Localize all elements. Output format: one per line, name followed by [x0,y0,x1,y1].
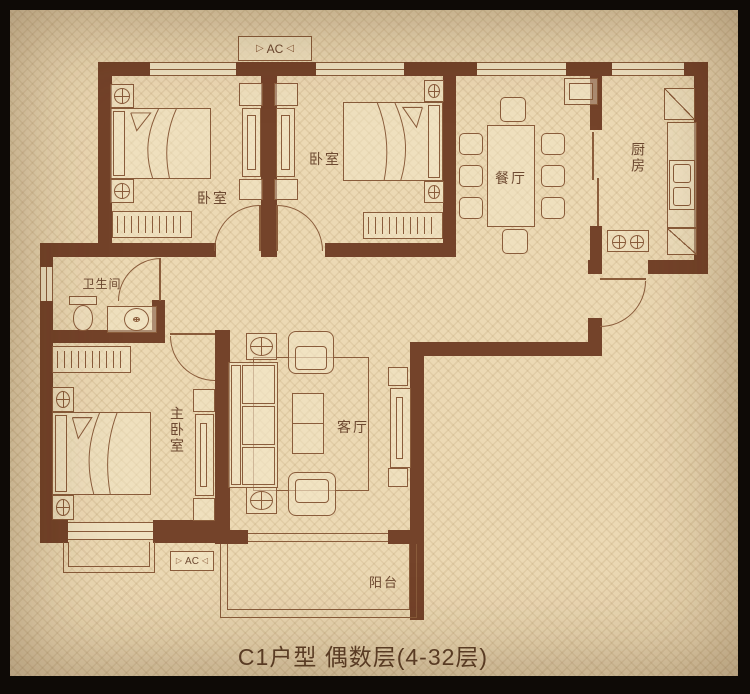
wall [215,530,248,544]
toilet-tank [69,296,97,305]
lamp-icon [114,88,130,104]
burner-icon [630,235,644,249]
armchair-seat [295,346,327,370]
ac-unit-bottom: ▷ AC ◁ [170,551,214,571]
wall [566,62,612,76]
kitchen-sliding-door [597,178,599,226]
wardrobe-door [247,115,256,170]
side-table [246,333,277,360]
closet-box [239,179,263,200]
tv-screen [200,423,207,487]
door-leaf-bedroom1 [259,205,261,251]
floorplan-image: 卧室 卧室 餐厅 厨房 卫生间 [0,0,750,694]
nightstand [110,84,134,108]
refrigerator [664,88,695,120]
bed-blanket-icon [111,109,210,178]
counter-corner [667,228,697,255]
table-divider [293,423,323,424]
dining-chair [459,197,483,219]
room-label-bathroom: 卫生间 [78,275,126,292]
closet-box [239,83,263,106]
closet-box [274,83,298,106]
plan-caption: C1户型 偶数层(4-32层) [0,638,738,672]
tv-side-box [193,389,215,412]
wall [40,257,53,267]
window [316,62,404,76]
burner-icon [612,235,626,249]
room-label-living: 客厅 [327,417,379,437]
drain-icon [133,317,140,322]
wall [648,260,708,274]
ac-triangle-icon: ▷ [176,557,182,565]
bed [52,412,151,495]
wardrobe [242,108,261,177]
bed-blanket-icon [344,103,442,180]
sink-basin [673,187,691,206]
lamp-icon [114,183,130,199]
ac-label: AC [267,42,284,56]
cabinet [564,78,598,105]
bed [110,108,211,179]
wall [404,62,478,76]
lamp-icon [56,499,70,516]
plant-icon [250,491,273,510]
wardrobe-door [281,115,290,170]
dresser [112,211,192,238]
nightstand [110,179,134,203]
nightstand [52,495,74,520]
dining-chair [500,97,526,122]
wall [236,62,316,76]
lamp-icon [56,391,70,408]
bed-blanket-icon [53,413,150,494]
door-leaf-master [170,333,215,335]
closet-box [274,179,298,200]
ac-unit-top: ▷ AC ◁ [238,36,312,61]
sink-basin [673,164,691,183]
wash-basin [124,308,149,331]
coffee-table [292,393,324,454]
plant-icon [250,337,273,356]
room-label-kitchen: 厨房 [628,142,648,186]
wall [388,530,410,544]
room-label-bedroom1: 卧室 [185,188,241,208]
window [40,267,53,301]
kitchen-sliding-door [592,132,594,180]
room-label-bedroom2: 卧室 [297,149,353,169]
side-table [246,487,277,514]
nightstand [424,80,444,102]
room-label-master: 主卧室 [167,406,187,476]
bay-window-inner [68,542,150,567]
lamp-icon [428,185,440,199]
cabinet-inner [569,83,593,100]
armchair [288,472,336,516]
armchair [288,331,334,374]
door-leaf-bathroom [159,258,161,301]
kitchen-sink [669,160,695,210]
sofa [228,362,278,488]
window [477,62,566,76]
door-leaf-bedroom2 [276,205,278,251]
sofa-cushion [242,447,275,485]
toilet [73,305,93,331]
balcony-sliding-door [248,533,388,542]
window [612,62,684,76]
tv-side-box [193,498,215,521]
door-leaf-entry [600,278,646,280]
room-label-balcony: 阳台 [360,572,408,591]
window [150,62,236,76]
tv-side-box [388,367,408,386]
dining-chair [541,133,565,155]
tv-cabinet [390,388,411,468]
wall [443,76,456,257]
tv-cabinet [195,414,214,496]
sofa-cushion [242,406,275,445]
dining-chair [541,197,565,219]
nightstand [52,387,74,412]
ac-triangle-icon: ▷ [256,44,264,54]
wall [40,243,216,257]
ac-triangle-icon: ◁ [202,557,208,565]
armchair-seat [295,479,329,503]
room-label-dining: 餐厅 [487,168,535,188]
wardrobe [276,108,295,177]
lamp-icon [428,84,440,98]
wall [40,520,68,543]
wall [325,243,456,257]
tv-screen [396,397,403,459]
window [68,522,153,540]
dresser [363,212,443,239]
wall [590,226,602,274]
wardrobe [52,346,131,373]
ac-label: AC [185,556,199,567]
dining-chair [459,165,483,187]
stove [607,230,649,252]
tv-side-box [388,468,408,487]
dining-chair [541,165,565,187]
nightstand [424,181,444,203]
bed [343,102,443,181]
sofa-cushion [242,365,275,404]
sofa-back [231,365,241,485]
dining-chair [459,133,483,155]
dining-chair [502,229,528,254]
ac-triangle-icon: ◁ [286,44,294,54]
wall [424,342,588,356]
